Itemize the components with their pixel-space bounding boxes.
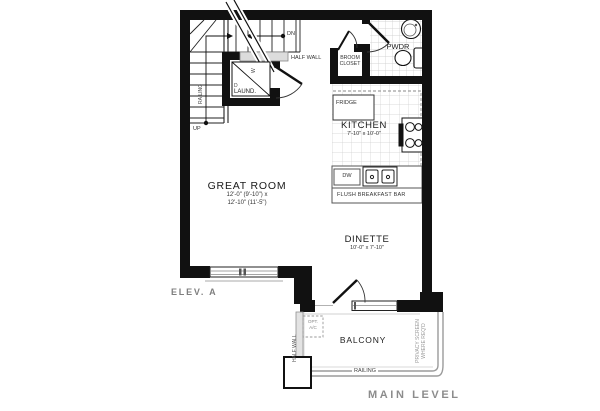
- washer-label: W: [251, 68, 257, 73]
- wall-broom-door-jamb: [354, 44, 362, 52]
- great-room-dims-2: 12'-10" (11'-5"): [182, 200, 312, 208]
- broom-closet-label: BROOM CLOSET: [337, 55, 363, 68]
- broom-closet-label-line2: CLOSET: [337, 61, 363, 67]
- dn-label: DN: [287, 31, 295, 37]
- elevation-label: ELEV. A: [171, 287, 217, 297]
- great-room-label: GREAT ROOM: [182, 180, 312, 192]
- wall-kitchen-north: [330, 76, 432, 84]
- dinette-sidelite-window: [352, 301, 397, 311]
- range-stove-icon: [399, 118, 424, 152]
- kitchen-sink-icon: [363, 167, 397, 186]
- great-room-window: [205, 267, 283, 281]
- wall-laundry-door-jamb-bottom: [270, 88, 280, 106]
- laundry-label: LAUND.: [234, 89, 256, 95]
- wall-top: [180, 10, 432, 20]
- dinette-label: DINETTE: [332, 234, 402, 245]
- page-title: MAIN LEVEL: [368, 389, 461, 401]
- pedestal-sink-icon: [402, 20, 421, 39]
- balcony-half-wall-label: HALF WALL: [292, 334, 298, 362]
- privacy-screen-label-line2: WHERE REQ'D: [421, 313, 427, 369]
- wall-laundry-west: [222, 52, 230, 106]
- pwdr-label: PWDR: [378, 42, 418, 51]
- wall-right: [422, 10, 432, 302]
- wall-corner-post: [420, 292, 443, 312]
- balcony-label: BALCONY: [313, 335, 413, 345]
- stair-treads-lower-run: [190, 52, 224, 123]
- fridge-box: [333, 95, 374, 120]
- wall-left: [180, 10, 190, 278]
- dryer-label: D: [234, 83, 238, 89]
- half-wall-top-label: HALF WALL: [291, 55, 321, 61]
- breakfast-bar-label: FLUSH BREAKFAST BAR: [337, 192, 406, 198]
- wall-dinette-bottom-left: [300, 300, 315, 312]
- great-room-dims-1: 12'-0" (9'-10") x: [182, 192, 312, 200]
- floor-plan-page: GREAT ROOM 12'-0" (9'-10") x 12'-10" (11…: [0, 0, 600, 411]
- wall-greatroom-bottom-left: [180, 266, 210, 278]
- optional-ac-label: OPT. A/C: [303, 319, 323, 330]
- kitchen-label: KITCHEN: [333, 120, 395, 131]
- wall-greatroom-bottom-right: [278, 266, 312, 278]
- kitchen-dims: 7'-10" x 10'-0": [333, 131, 395, 139]
- wall-pwdr-west: [362, 44, 370, 84]
- dishwasher-label: DW: [336, 173, 358, 179]
- dinette-dims: 10'-0" x 7'-10": [332, 245, 402, 253]
- fridge-label: FRIDGE: [336, 100, 357, 106]
- optional-ac-label-line2: A/C: [303, 325, 323, 331]
- up-label: UP: [193, 126, 201, 132]
- balcony-railing-label: RAILING: [352, 368, 378, 374]
- privacy-screen-label: PRIVACY SCREEN WHERE REQ'D: [415, 313, 427, 369]
- stair-railing-label: RAILING: [198, 84, 204, 104]
